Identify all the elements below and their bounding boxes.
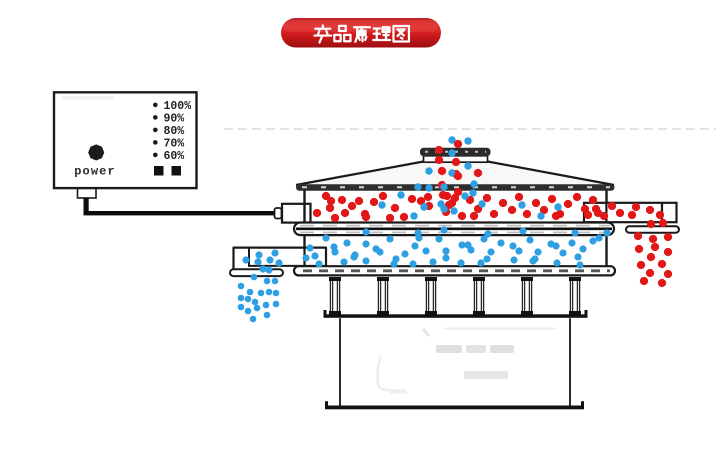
svg-text:90%: 90% bbox=[164, 112, 185, 125]
svg-text:60%: 60% bbox=[164, 150, 185, 163]
svg-text:70%: 70% bbox=[164, 137, 185, 150]
svg-text:80%: 80% bbox=[164, 125, 185, 138]
svg-text:100%: 100% bbox=[164, 100, 192, 113]
svg-text:power: power bbox=[74, 165, 116, 179]
